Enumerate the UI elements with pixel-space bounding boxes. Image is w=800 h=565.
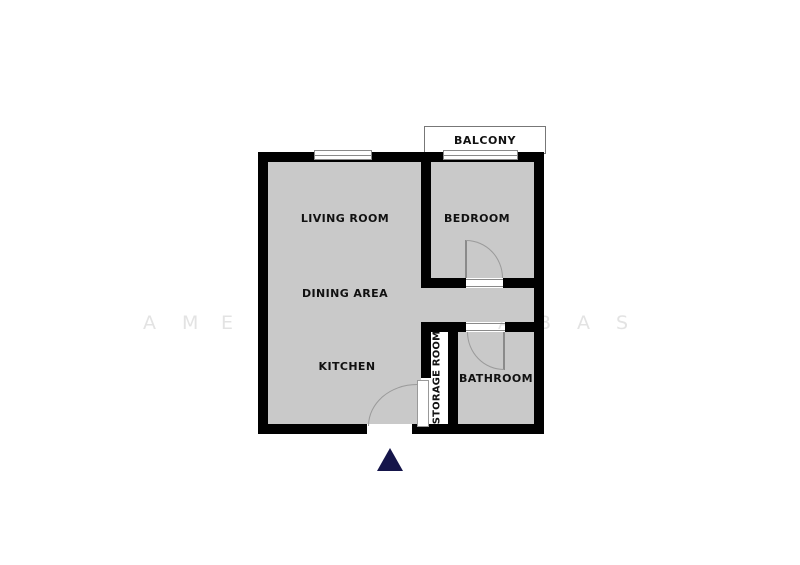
dining-area-label: DINING AREA — [265, 287, 425, 300]
bathroom-label: BATHROOM — [456, 372, 536, 385]
watermark-letter: S — [616, 314, 628, 333]
kitchen-label: KITCHEN — [267, 360, 427, 373]
floor-plan-page: { "watermark": { "color": "#e3e3e3", "le… — [0, 0, 800, 565]
wall-bottom-left-segment — [258, 424, 367, 434]
wall-bottom-right-segment — [412, 424, 544, 434]
watermark-letter: E — [221, 314, 233, 333]
watermark-letter: A — [143, 314, 156, 333]
living-room-label: LIVING ROOM — [265, 212, 425, 225]
bedroom-label: BEDROOM — [427, 212, 527, 225]
entrance-door-leaf — [417, 380, 429, 427]
wall-bedroom-bottom-right — [503, 278, 544, 288]
watermark-letter: A — [577, 314, 590, 333]
storage-room-label: STORAGE ROOM — [432, 330, 449, 426]
bedroom-balcony-window — [443, 150, 518, 160]
hall-corridor-floor — [421, 288, 534, 322]
watermark-letter: M — [182, 314, 198, 333]
entrance-arrow-icon — [377, 448, 403, 471]
wall-bathroom-top-right — [505, 322, 544, 332]
bedroom-door-threshold — [466, 279, 503, 287]
wall-bedroom-bottom-left — [421, 278, 466, 288]
bathroom-door-threshold — [466, 323, 505, 331]
balcony-label: BALCONY — [454, 134, 516, 147]
living-room-window — [314, 150, 372, 160]
wall-right — [534, 152, 544, 434]
